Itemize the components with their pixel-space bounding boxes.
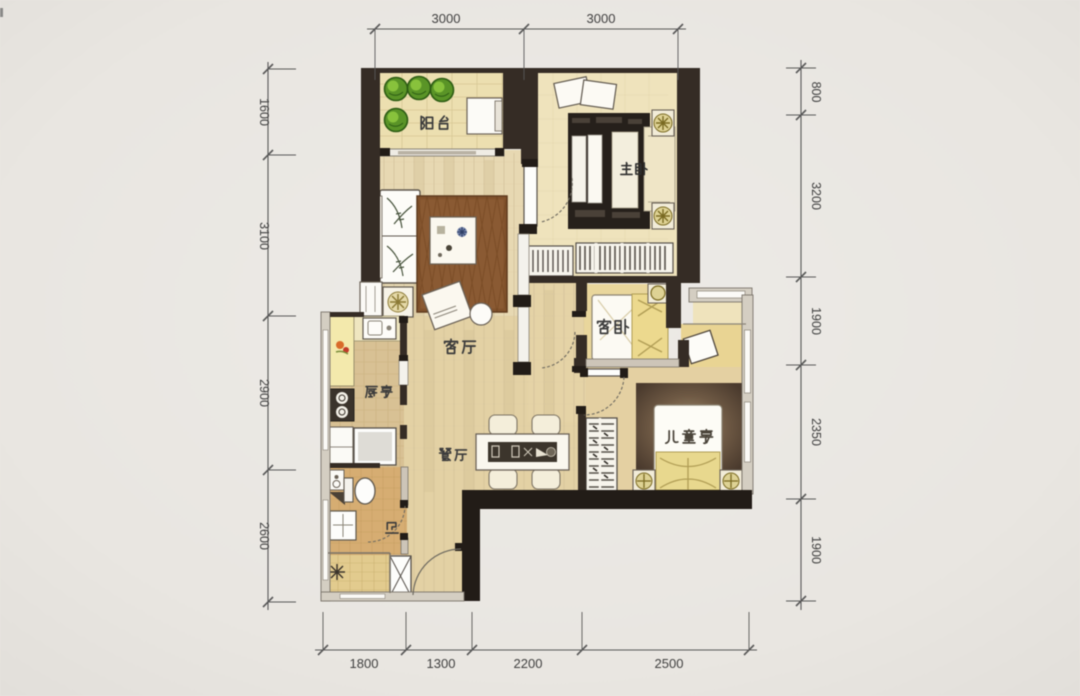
svg-text:1300: 1300 bbox=[427, 656, 456, 671]
svg-text:3100: 3100 bbox=[257, 222, 271, 250]
svg-text:1900: 1900 bbox=[809, 307, 823, 335]
svg-text:3000: 3000 bbox=[587, 11, 616, 26]
svg-text:3000: 3000 bbox=[432, 11, 461, 26]
svg-text:1800: 1800 bbox=[350, 656, 379, 671]
svg-text:2600: 2600 bbox=[257, 522, 271, 550]
svg-text:800: 800 bbox=[809, 82, 823, 103]
svg-text:1600: 1600 bbox=[257, 98, 271, 126]
svg-text:2200: 2200 bbox=[514, 656, 543, 671]
svg-text:3200: 3200 bbox=[809, 182, 823, 210]
svg-text:1900: 1900 bbox=[809, 536, 823, 564]
svg-text:2350: 2350 bbox=[809, 418, 823, 446]
svg-text:2500: 2500 bbox=[655, 656, 684, 671]
svg-text:2900: 2900 bbox=[257, 379, 271, 407]
